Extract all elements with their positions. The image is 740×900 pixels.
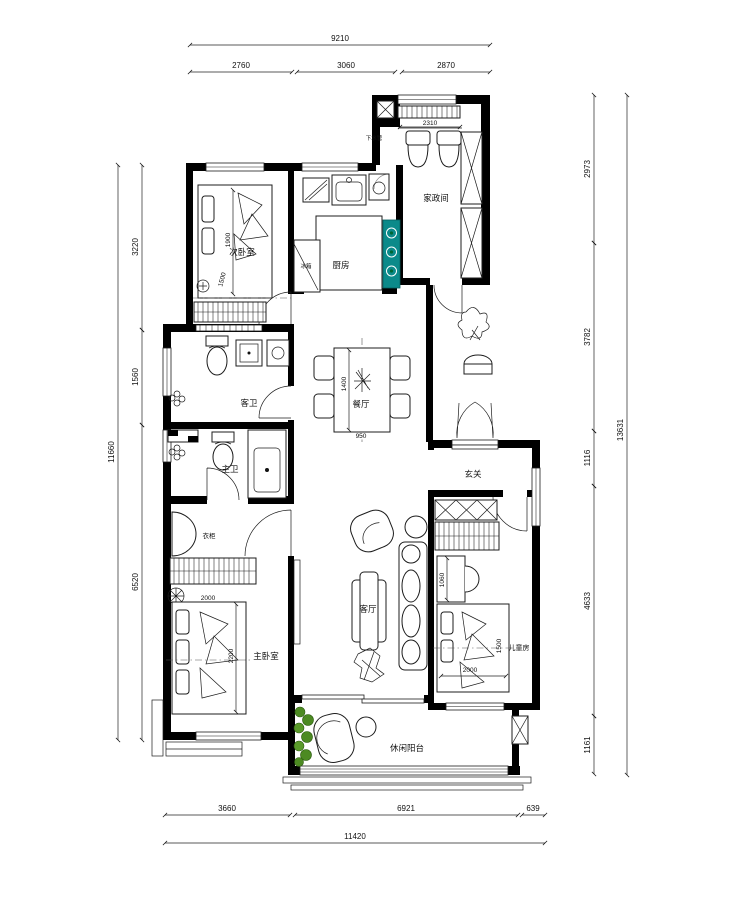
dim-right-5: 1161 — [583, 736, 592, 754]
room-label-living: 客厅 — [359, 604, 377, 614]
basin — [406, 131, 430, 167]
dim-top-1: 2760 — [232, 61, 250, 70]
room-label-bath-master: 主卫 — [221, 464, 239, 474]
dim-right-1: 2973 — [583, 160, 592, 178]
window — [300, 766, 508, 775]
dining-set — [314, 338, 410, 442]
dim-left-2: 1560 — [131, 368, 140, 386]
window — [196, 732, 261, 740]
stove — [383, 220, 400, 288]
kitchen-counter — [294, 174, 400, 292]
laundry-rack — [168, 430, 198, 442]
armchair — [346, 506, 397, 556]
door-bath-guest — [259, 386, 291, 418]
dim-right-4: 4633 — [583, 592, 592, 610]
dim-kbed-len: 2000 — [463, 667, 478, 674]
wardrobe-secondary — [194, 302, 266, 322]
entry-area — [458, 307, 492, 374]
window — [532, 468, 540, 526]
dim-mbed-wid: 2000 — [201, 595, 216, 602]
balcony — [294, 707, 528, 767]
dim-kbed-wid: 1500 — [496, 638, 503, 653]
tv-bench — [294, 560, 300, 644]
room-label-dining: 餐厅 — [352, 399, 370, 409]
wardrobe-kids — [435, 522, 499, 550]
door-utility — [434, 285, 462, 313]
dim-left-3: 6520 — [131, 573, 140, 591]
dim-table-len: 1400 — [341, 376, 348, 391]
window — [206, 163, 264, 171]
bed-secondary — [193, 185, 292, 298]
dim-bottom-1: 3660 — [218, 804, 236, 813]
water-heater — [369, 174, 389, 200]
living-plant-icon — [354, 648, 384, 682]
dim-left-total: 11660 — [107, 441, 116, 463]
kitchen-sink — [332, 175, 366, 205]
washing-machine — [267, 340, 289, 366]
bath-guest — [206, 336, 289, 375]
floor-plan-page: 9210 2760 3060 2870 3660 6921 639 11420 … — [0, 0, 740, 900]
open-shelf — [435, 500, 497, 520]
bath-high-window — [196, 325, 262, 331]
dim-mbed-len: 2200 — [228, 648, 235, 663]
dim-left-1: 3220 — [131, 238, 140, 256]
dim-top-2: 3060 — [337, 61, 355, 70]
shower — [248, 430, 286, 498]
dim-bottom-3: 639 — [526, 804, 540, 813]
electric-box — [377, 101, 394, 118]
dim-top-3: 2870 — [437, 61, 455, 70]
sliding-door — [302, 695, 424, 703]
room-label-bedroom2: 次卧室 — [229, 247, 255, 257]
window — [446, 703, 504, 710]
room-label-utility: 家政间 — [423, 193, 449, 203]
mop-sink — [236, 340, 262, 366]
side-table — [405, 516, 427, 538]
master-bedroom — [166, 512, 256, 714]
dim-table-wid: 950 — [356, 433, 367, 440]
entry-double-door — [452, 402, 498, 449]
lounge-chair — [311, 710, 358, 765]
vanity-desk — [172, 512, 196, 556]
dim-top-total: 9210 — [331, 34, 349, 43]
dim-right-total: 13631 — [616, 418, 625, 441]
living-room — [294, 506, 427, 682]
room-label-bath-guest: 客卫 — [240, 398, 258, 408]
door-master — [245, 510, 291, 556]
room-label-kids: 儿童房 — [509, 643, 530, 652]
room-label-kitchen: 厨房 — [332, 260, 349, 270]
dim-right-3: 1116 — [583, 449, 592, 466]
room-label-entry: 玄关 — [464, 469, 482, 479]
label-wardrobe: 衣柜 — [203, 531, 217, 540]
label-drain: 下水管 — [366, 134, 383, 142]
balcony-table — [356, 717, 376, 737]
room-label-balcony: 休闲阳台 — [390, 743, 424, 753]
room-label-master: 主卧室 — [253, 651, 279, 661]
window — [302, 163, 358, 171]
dim-desk: 1060 — [439, 572, 446, 587]
window — [163, 348, 171, 396]
balcony-steps — [283, 777, 531, 790]
dim-bottom-total: 11420 — [344, 832, 366, 841]
window — [398, 95, 456, 104]
shaft — [461, 132, 482, 204]
basin — [437, 131, 461, 167]
kids-room — [433, 500, 514, 692]
toilet — [206, 336, 228, 375]
dim-right-2: 3782 — [583, 328, 592, 346]
label-fridge: 冰箱 — [300, 262, 312, 270]
wardrobe-master — [170, 558, 256, 584]
floor-plan-canvas: 9210 2760 3060 2870 3660 6921 639 11420 … — [0, 0, 740, 900]
shaft — [461, 208, 482, 278]
sofa — [399, 542, 427, 670]
dim-bottom-2: 6921 — [397, 804, 415, 813]
utility-cabinet — [398, 106, 460, 118]
dim-bed2-len: 1900 — [225, 232, 232, 247]
dim-counter: 2310 — [423, 120, 438, 127]
bath-master — [168, 391, 286, 498]
column — [512, 716, 528, 744]
bed-master — [166, 602, 252, 714]
balcony-plant-icon — [294, 707, 314, 767]
entry-plant-icon — [458, 307, 489, 340]
console-table — [464, 355, 492, 374]
